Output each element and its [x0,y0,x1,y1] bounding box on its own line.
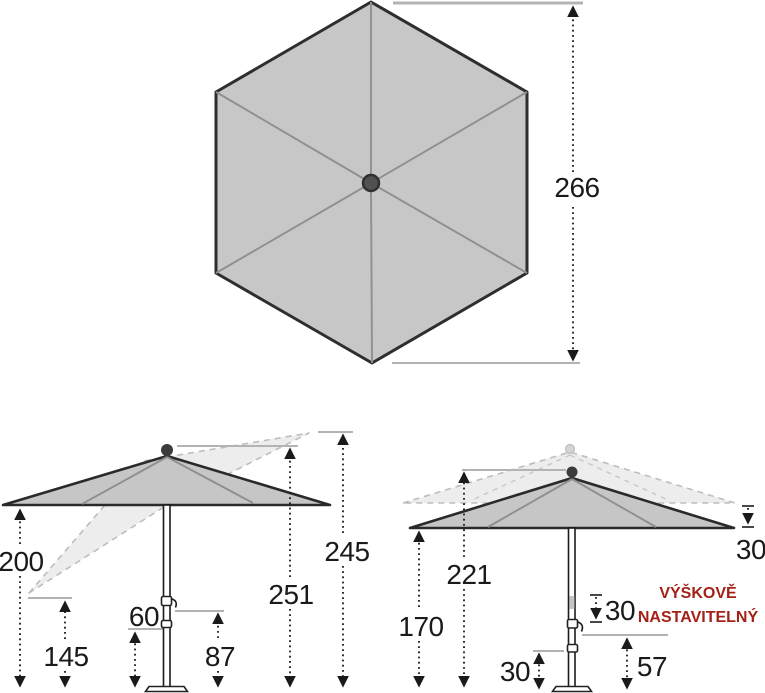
dim-145: 145 [43,602,88,686]
dim-label-30-collar: 30 [500,656,530,687]
finial-ball-icon [567,467,578,478]
dim-label-57: 57 [637,651,667,682]
tilt-view-figure: 200 145 60 87 251 245 [0,432,370,692]
crank-handle [578,622,582,632]
height-adjustable-note: VÝŠKOVĚ NASTAVITELNÝ [638,583,759,626]
dim-label-30-slider: 30 [605,595,635,626]
note-line-1: VÝŠKOVĚ [659,583,737,602]
tilt-base-plate [146,687,188,692]
dim-label-245: 245 [324,536,369,567]
ghost-finial-ball [566,445,575,454]
top-view-hexagon-canopy [216,2,527,363]
dim-label-221: 221 [446,559,491,590]
dim-30-edge-drop: 30 [736,506,765,565]
dim-60: 60 [129,601,159,686]
height-base-plate [553,687,592,692]
tilt-joint-lower [162,621,172,628]
tilt-joint-upper [162,597,172,606]
dim-251: 251 [268,449,313,686]
height-view-figure: 221 170 30 30 57 30 VÝŠKOVĚ [398,445,765,692]
tilt-crank-handle [172,599,176,608]
dim-label-200: 200 [0,546,44,577]
dim-245: 245 [324,435,369,686]
dim-label-30-edge: 30 [736,534,765,565]
adjust-collar-lower [568,645,578,653]
pole-slider-segment [570,596,575,609]
dim-label-60: 60 [129,601,159,632]
adjust-knob-upper [568,620,578,629]
dim-label-266: 266 [554,172,599,203]
finial-ball-icon [161,444,173,456]
umbrella-dimension-diagram: 266 200 145 [0,0,765,693]
dim-30-slider: 30 [590,595,635,626]
dim-170: 170 [398,532,443,686]
tilt-umbrella-canopy [3,456,330,505]
dim-label-87: 87 [205,641,235,672]
dim-label-251: 251 [268,579,313,610]
center-hub-icon [363,175,379,191]
dim-label-170: 170 [398,611,443,642]
note-line-2: NASTAVITELNÝ [638,607,759,626]
dim-label-145: 145 [43,641,88,672]
dim-57: 57 [627,639,667,688]
dim-87: 87 [205,614,235,686]
diagram-canvas: 266 200 145 [0,0,765,693]
dim-30-collar: 30 [500,654,539,688]
